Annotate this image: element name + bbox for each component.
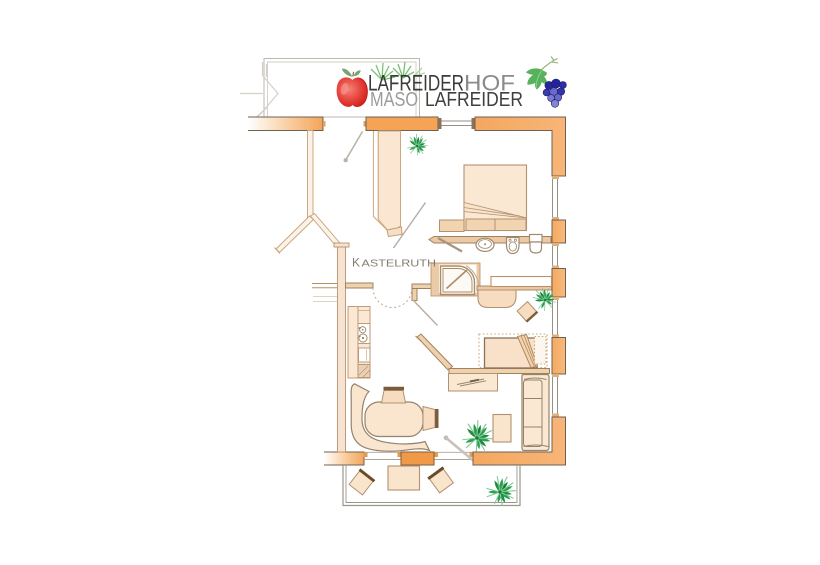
svg-text:ASTELRUTH: ASTELRUTH [362,258,437,270]
svg-text:K: K [352,256,360,270]
svg-text:LAFREIDER: LAFREIDER [425,89,523,111]
svg-text:MASO: MASO [370,89,418,111]
